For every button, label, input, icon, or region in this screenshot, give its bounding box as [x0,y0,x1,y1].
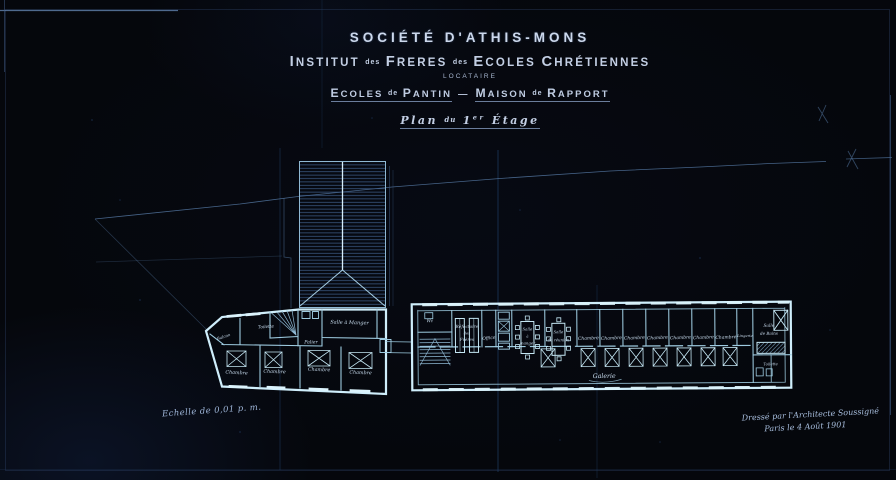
institute-word: INSTITUT [290,54,360,70]
room-label-refectoire: des [464,331,470,335]
site-boundary [95,105,892,330]
blueprint-sheet: Balcon Toilette Palier Salle à Manger Ch… [0,0,896,480]
bath-window-bay [774,310,788,330]
room-label-salle-a-manger: Salle à Manger [330,319,369,327]
room-label-chambre: Chambre [601,335,623,342]
institute-title: INSTITUT des FRERES des ECOLES CHRÉTIENN… [22,54,896,70]
institute-word-small: des [453,59,468,66]
room-label-toilette: Toilette [763,361,778,366]
project-part-maison-rapport: MAISON de RAPPORT [475,89,609,102]
room-label-salle-a-manger: à [526,334,528,338]
room-label-chambre: Chambre [624,335,646,342]
corridor-label-galerie: Galerie [593,373,616,380]
room-label-refectoire: Réfectoire [455,325,479,330]
institute-word: CHRÉTIENNES [541,54,650,70]
room-label-chambre: Chambre [670,334,692,341]
room-label-chambre: Chambre [578,335,600,342]
room-label-office: Office [482,336,496,342]
room-label-chambre: Chambre [693,334,715,341]
service-shaft [498,312,509,349]
institute-word: ECOLES [473,54,536,70]
title-dash: — [452,89,476,100]
stair-fan-treads [272,310,296,335]
room-label-chambre: Chambre [715,334,737,341]
room-label-chambre: Chambre [308,367,331,374]
project-part-ecoles-pantin: ECOLES de PANTIN [331,89,452,102]
company-title: SOCIÉTÉ D'ATHIS-MONS [22,30,896,45]
tenant-subtitle: LOCATAIRE [22,73,896,80]
institute-word-small: des [365,59,380,66]
room-label-salle-reunion: de réunion [548,337,570,342]
room-label-chambre: Chambre [349,370,372,377]
room-label-salle-reunion: Salle [553,329,564,334]
room-label-refectoire: Frères [459,338,475,343]
room-label-balcon: Balcon [215,332,231,341]
stair-treads [420,339,450,364]
bathtub [757,342,785,353]
roof-plan [299,162,393,308]
room-label-salle-de-bains: de Bains [760,331,778,336]
room-label-palier: Palier [303,340,318,346]
window-openings [424,302,788,305]
title-block: SOCIÉTÉ D'ATHIS-MONS INSTITUT des FRERES… [22,30,896,127]
plan-title-text: Plan du 1er Étage [400,114,539,129]
room-label-chambre: Chambre [647,335,669,342]
annex-building-plan: Balcon Toilette Palier Salle à Manger Ch… [206,310,412,395]
room-label-lingerie: Lingerie [736,334,752,338]
room-label-salle-a-manger: Salle [522,326,533,331]
room-label-salle-de-bains: Salle [763,324,774,329]
main-building-plan: Wc Réfectoire des Frères Office Salle à … [412,302,792,391]
corridor-wall [418,345,753,348]
room-label-salle-a-manger: manger [520,340,536,345]
room-label-toilette: Toilette [258,323,275,329]
institute-word: FRERES [386,54,448,70]
room-label-chambre: Chambre [225,369,248,376]
project-title: ECOLES de PANTIN—MAISON de RAPPORT [22,86,896,100]
room-label-chambre: Chambre [263,369,286,376]
room-label-wc: Wc [426,318,433,323]
plan-title: Plan du 1er Étage [22,113,896,127]
